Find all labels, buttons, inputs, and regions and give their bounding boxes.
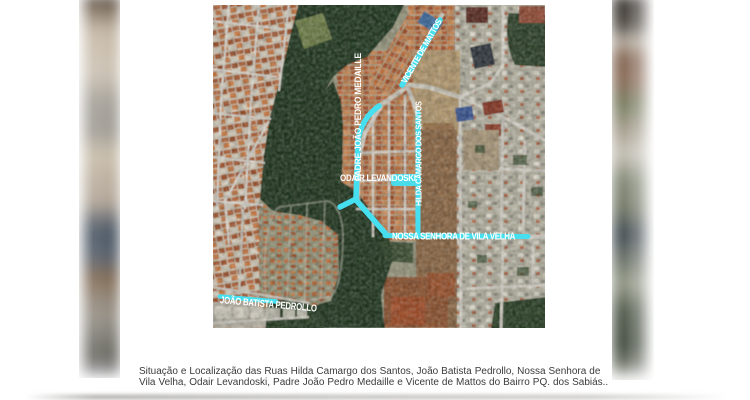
svg-text:ODAIR LEVANDOSKI: ODAIR LEVANDOSKI: [340, 172, 416, 183]
svg-text:NOSSA SENHORA DE VILA VELHA: NOSSA SENHORA DE VILA VELHA: [392, 231, 516, 242]
svg-text:PADRE JOÃO PEDRO MEDAILLE: PADRE JOÃO PEDRO MEDAILLE: [353, 53, 363, 181]
svg-text:HILDA CAMARGO DOS SANTOS: HILDA CAMARGO DOS SANTOS: [414, 101, 424, 206]
